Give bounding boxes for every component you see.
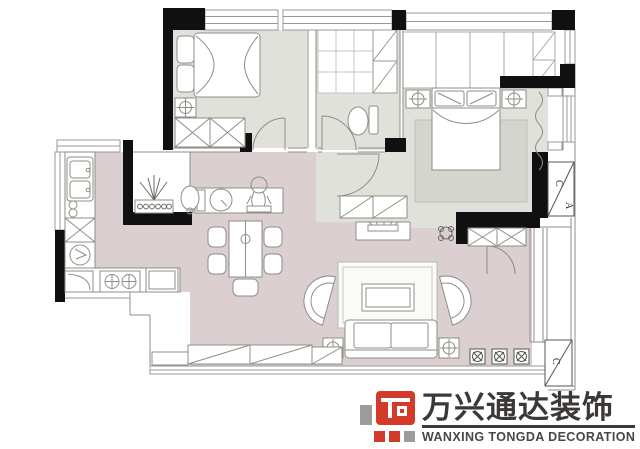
corner-cabinet [65, 271, 93, 292]
wall-entry-top [458, 212, 540, 228]
floor-doorway [403, 212, 458, 228]
logo-mark-gray-square [404, 431, 415, 442]
gas-stove [100, 271, 140, 292]
wall-top-center [392, 10, 406, 30]
dining-chair [233, 279, 258, 296]
ac-unit-entry: C [545, 340, 572, 386]
logo-mark [360, 391, 415, 444]
ac-letter-a: A [563, 202, 574, 210]
plant [514, 349, 529, 364]
wall-kitchen-bottom [57, 292, 130, 298]
plant [470, 349, 485, 364]
shower-tiles [318, 30, 373, 93]
wall-entry-stub [456, 212, 468, 244]
ac-letter-c: C [550, 358, 561, 365]
wall-living-bottom [150, 366, 548, 374]
shoe-cabinet [468, 228, 526, 246]
floor-plan-canvas: C A C [0, 0, 640, 449]
window-master-right [548, 88, 575, 150]
wall-top-right-corner [552, 10, 575, 30]
wall-kitchen-L-horizontal [123, 212, 192, 225]
logo-text: 万兴通达装饰 WANXING TONGDA DECORATION [422, 391, 635, 444]
logo-mark-red-block [376, 391, 415, 425]
living-furniture [298, 262, 476, 358]
plant [492, 349, 507, 364]
base-cabinet [146, 268, 178, 292]
single-bed [177, 33, 260, 97]
wall-ac-bay [532, 152, 548, 218]
planter-box [135, 175, 173, 213]
kitchen-sink [67, 157, 93, 201]
logo-mark-red-square [374, 431, 385, 442]
dining-chair [264, 254, 282, 274]
bathroom-cabinet [373, 30, 397, 93]
watermark-logo: 万兴通达装饰 WANXING TONGDA DECORATION [360, 391, 635, 444]
coffee-table [362, 284, 414, 311]
logo-cn-text: 万兴通达装饰 [422, 391, 635, 428]
ac-unit-master: C A [548, 162, 574, 216]
fridge [65, 218, 95, 242]
sofa [345, 320, 437, 358]
ac-letter-c: C [553, 180, 564, 187]
window-bathroom-top [283, 10, 392, 30]
dining-chair [264, 227, 282, 247]
window-kitchen-top [57, 140, 120, 152]
window-right-upper [565, 30, 575, 64]
floor-plan-drawing: C A C [0, 0, 640, 449]
pillow [177, 65, 194, 92]
dining-chair [208, 254, 226, 274]
tv-wall-cabinets [152, 345, 342, 365]
dining-table [229, 221, 262, 277]
window-kitchen-left [55, 152, 65, 230]
dining-chair [208, 227, 226, 247]
logo-mark-red-square [389, 431, 400, 442]
wardrobe [175, 118, 245, 147]
washing-machine [65, 242, 95, 268]
logo-mark-gray-block [360, 405, 372, 425]
hallway-cabinet [340, 196, 407, 218]
pillow [177, 36, 194, 63]
logo-en-text: WANXING TONGDA DECORATION [422, 430, 635, 444]
plant-spray [140, 175, 167, 200]
tv-console [356, 222, 410, 240]
window-bedroom-top [205, 10, 278, 30]
wall-bedroom-left [163, 8, 173, 150]
wall-kitchen-left-lower [55, 230, 65, 302]
wall-master-top [500, 76, 563, 88]
toilet [348, 106, 378, 135]
entry-plants [470, 349, 529, 364]
wall-bathroom-corner [385, 138, 406, 152]
window-closet-top [406, 13, 552, 30]
double-bed [432, 88, 500, 170]
